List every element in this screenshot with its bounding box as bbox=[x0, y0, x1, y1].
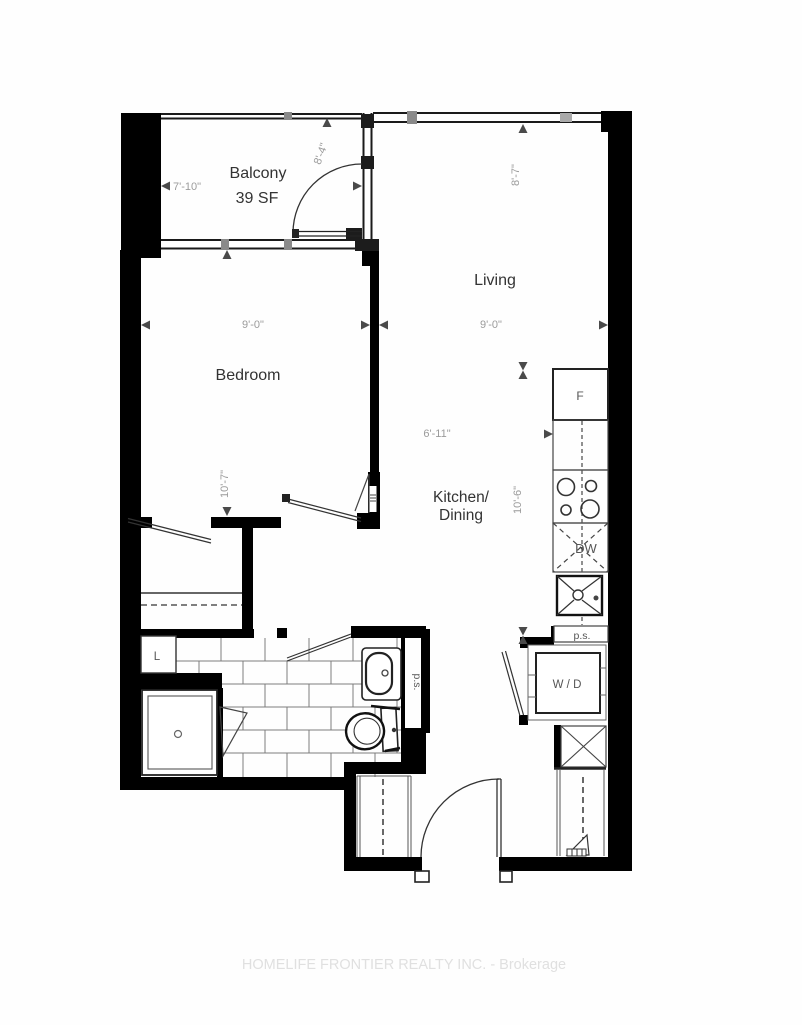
svg-text:HOMELIFE FRONTIER REALTY INC.: HOMELIFE FRONTIER REALTY INC. - Brokerag… bbox=[242, 957, 566, 973]
svg-text:10'-7": 10'-7" bbox=[219, 470, 231, 498]
svg-text:39 SF: 39 SF bbox=[236, 190, 279, 207]
svg-text:DW: DW bbox=[575, 541, 597, 556]
svg-text:Living: Living bbox=[474, 272, 516, 289]
svg-text:Bedroom: Bedroom bbox=[216, 367, 281, 384]
svg-text:Dining: Dining bbox=[439, 507, 483, 524]
svg-text:Kitchen/: Kitchen/ bbox=[433, 489, 490, 506]
svg-text:p.s.: p.s. bbox=[574, 630, 591, 642]
svg-text:7'-10": 7'-10" bbox=[173, 181, 201, 193]
svg-text:L: L bbox=[154, 651, 161, 663]
svg-text:p.s.: p.s. bbox=[411, 674, 423, 691]
svg-text:F: F bbox=[576, 389, 583, 403]
svg-text:6'-11": 6'-11" bbox=[423, 428, 450, 440]
svg-text:9'-0": 9'-0" bbox=[480, 319, 502, 331]
svg-text:8'-7": 8'-7" bbox=[510, 164, 522, 186]
svg-text:Balcony: Balcony bbox=[230, 165, 287, 182]
svg-text:9'-0": 9'-0" bbox=[242, 319, 264, 331]
svg-text:W / D: W / D bbox=[553, 679, 582, 691]
svg-text:10'-6": 10'-6" bbox=[512, 486, 524, 514]
